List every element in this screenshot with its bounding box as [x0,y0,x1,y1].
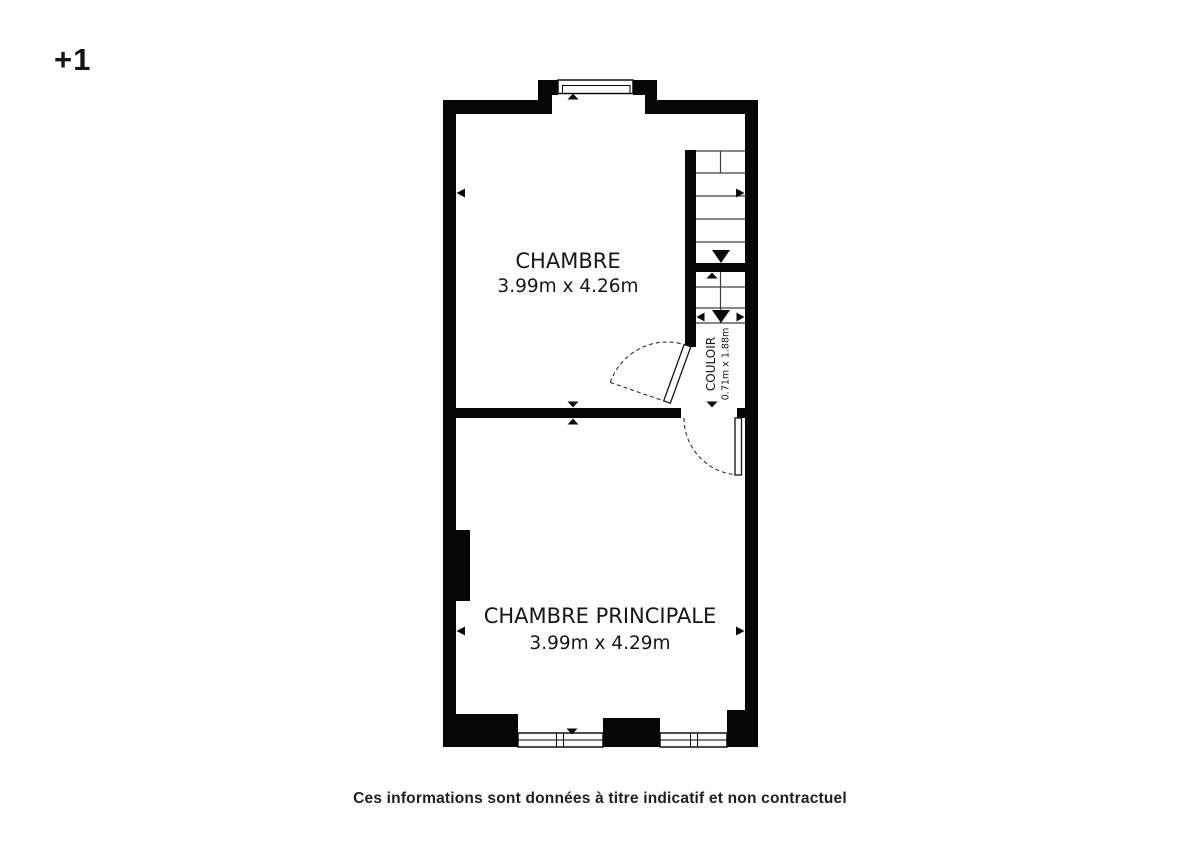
stair-divider-wall [685,263,758,272]
door-leaf [735,418,742,475]
dimension-arrow-up-icon [568,419,579,425]
stair-direction-arrow-icon [712,250,730,263]
window-pane [558,80,633,94]
dimension-arrow-up-icon [707,273,718,279]
dimension-arrow-down-icon [568,402,579,408]
door-leaf [664,344,691,403]
bay-jamb-right-step [645,94,657,114]
dimension-arrow-right-icon [736,627,745,636]
bay-jamb-left-step [538,94,552,114]
room-label-chambre: CHAMBRE [515,249,620,273]
staircase [696,151,745,323]
dimension-arrows-chambre-principale [457,419,745,735]
wall-middle-left-segment [443,408,681,418]
floor-plan-drawing: CHAMBRE 3.99m x 4.26m CHAMBRE PRINCIPALE… [0,0,1200,849]
window-top [558,80,633,94]
door-swing-radius [610,383,667,403]
wall-left [443,100,456,747]
room-dimensions-chambre: 3.99m x 4.26m [497,276,638,297]
door-chambre [610,342,691,403]
room-label-couloir: COULOIR [704,337,718,391]
dimension-arrow-left-icon [457,189,466,198]
wall-middle-right-segment [737,408,758,418]
window-bottom-left [518,733,603,747]
dimension-arrow-left-icon [697,313,705,322]
bay-jamb-right [633,80,657,95]
room-label-chambre-principale: CHAMBRE PRINCIPALE [484,604,717,628]
dimension-arrow-right-icon [737,313,745,322]
wall-right [745,100,758,747]
stair-direction-arrow-icon [712,310,730,323]
room-dimensions-couloir: 0.71m x 1.88m [721,328,732,400]
wall-pillar [456,530,470,601]
wall-top-left-segment [443,100,552,114]
wall-bottom-middle-block [603,718,660,747]
floor-plan-page: +1 [0,0,1200,849]
window-bottom-right [660,733,727,747]
door-chambre-principale [684,418,742,475]
dimension-arrow-down-icon [707,402,718,408]
stairwell-wall [685,150,696,347]
bay-jamb-left [538,80,558,95]
wall-bottom-right-block [727,710,758,747]
wall-top-right-segment [645,100,758,114]
disclaimer-text: Ces informations sont données à titre in… [0,790,1200,808]
room-dimensions-chambre-principale: 3.99m x 4.29m [529,633,670,654]
door-swing-arc [684,418,741,475]
dimension-arrow-left-icon [457,627,466,636]
wall-bottom-left-block [443,714,518,747]
dimension-arrow-up-icon [568,94,579,100]
